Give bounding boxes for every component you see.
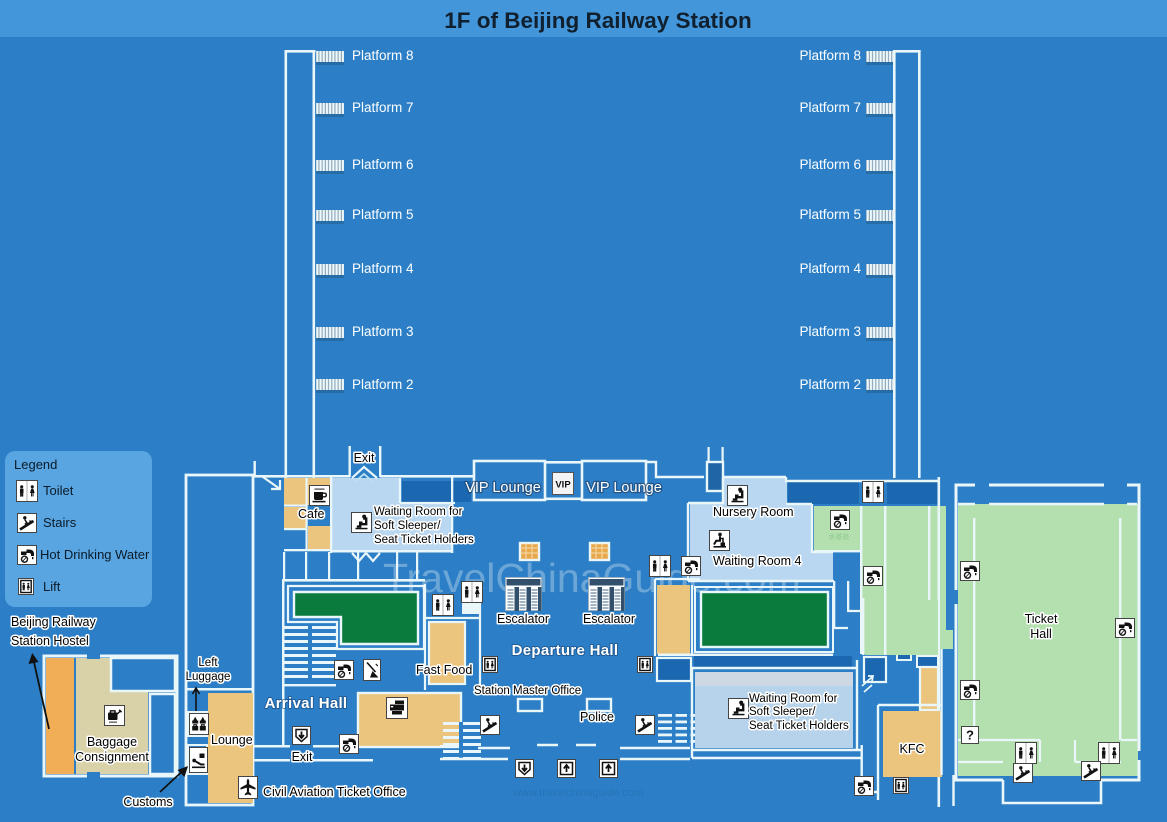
svg-text:Platform 7: Platform 7 [799, 100, 861, 115]
svg-text:Hall: Hall [1030, 627, 1052, 641]
svg-text:Civil Aviation Ticket Office: Civil Aviation Ticket Office [263, 785, 406, 799]
svg-text:Ticket: Ticket [1025, 612, 1058, 626]
svg-text:Exit: Exit [354, 451, 375, 465]
svg-text:Luggage: Luggage [186, 671, 231, 683]
svg-text:Exit: Exit [292, 750, 313, 764]
svg-text:Station Hostel: Station Hostel [11, 634, 89, 648]
svg-text:Platform 4: Platform 4 [799, 261, 861, 276]
svg-text:Waiting Room for: Waiting Room for [749, 693, 838, 705]
svg-text:Waiting Room 4: Waiting Room 4 [713, 554, 802, 568]
svg-text:Platform 3: Platform 3 [352, 324, 414, 339]
svg-text:Baggage: Baggage [87, 735, 137, 749]
svg-text:Nursery Room: Nursery Room [713, 505, 794, 519]
svg-text:Police: Police [580, 710, 614, 724]
svg-text:Soft Sleeper/: Soft Sleeper/ [374, 520, 441, 532]
svg-text:Lift: Lift [43, 579, 61, 594]
svg-text:Platform 6: Platform 6 [799, 157, 861, 172]
svg-text:Consignment: Consignment [75, 750, 149, 764]
svg-text:Station Master Office: Station Master Office [474, 685, 581, 697]
svg-text:Seat Ticket Holders: Seat Ticket Holders [749, 720, 849, 732]
svg-text:Customs: Customs [123, 795, 172, 809]
svg-text:1F of Beijing Railway Station: 1F of Beijing Railway Station [444, 8, 752, 33]
svg-text:Platform 7: Platform 7 [352, 100, 414, 115]
svg-text:Seat Ticket Holders: Seat Ticket Holders [374, 534, 474, 546]
svg-text:Platform 5: Platform 5 [799, 207, 861, 222]
svg-text:Arrival Hall: Arrival Hall [265, 695, 348, 712]
svg-text:Legend: Legend [14, 457, 57, 472]
svg-text:Cafe: Cafe [298, 507, 324, 521]
svg-text:KFC: KFC [900, 742, 925, 756]
svg-text:Escalator: Escalator [497, 612, 549, 626]
svg-text:Waiting Room for: Waiting Room for [374, 506, 463, 518]
svg-text:VIP Lounge: VIP Lounge [465, 480, 541, 496]
svg-text:Stairs: Stairs [43, 515, 77, 530]
svg-text:Platform 8: Platform 8 [352, 48, 414, 63]
svg-text:Toilet: Toilet [43, 483, 74, 498]
svg-text:Departure Hall: Departure Hall [512, 642, 619, 659]
svg-text:Platform 2: Platform 2 [352, 377, 414, 392]
svg-text:Soft Sleeper/: Soft Sleeper/ [749, 706, 816, 718]
svg-text:Fast Food: Fast Food [416, 663, 472, 677]
svg-text:Platform 4: Platform 4 [352, 261, 414, 276]
svg-text:Platform 5: Platform 5 [352, 207, 414, 222]
svg-text:Platform 3: Platform 3 [799, 324, 861, 339]
svg-text:VIP Lounge: VIP Lounge [586, 480, 662, 496]
svg-text:Platform 6: Platform 6 [352, 157, 414, 172]
svg-text:Lounge: Lounge [211, 733, 253, 747]
svg-text:Hot Drinking Water: Hot Drinking Water [40, 547, 150, 562]
svg-text:Escalator: Escalator [583, 612, 635, 626]
svg-text:Left: Left [198, 657, 218, 669]
svg-text:Platform 8: Platform 8 [799, 48, 861, 63]
svg-text:Beijing Railway: Beijing Railway [11, 615, 97, 629]
svg-text:Platform 2: Platform 2 [799, 377, 861, 392]
svg-text:www.travelchinaguide.com: www.travelchinaguide.com [512, 787, 643, 799]
svg-text:水茶处: 水茶处 [829, 532, 850, 541]
